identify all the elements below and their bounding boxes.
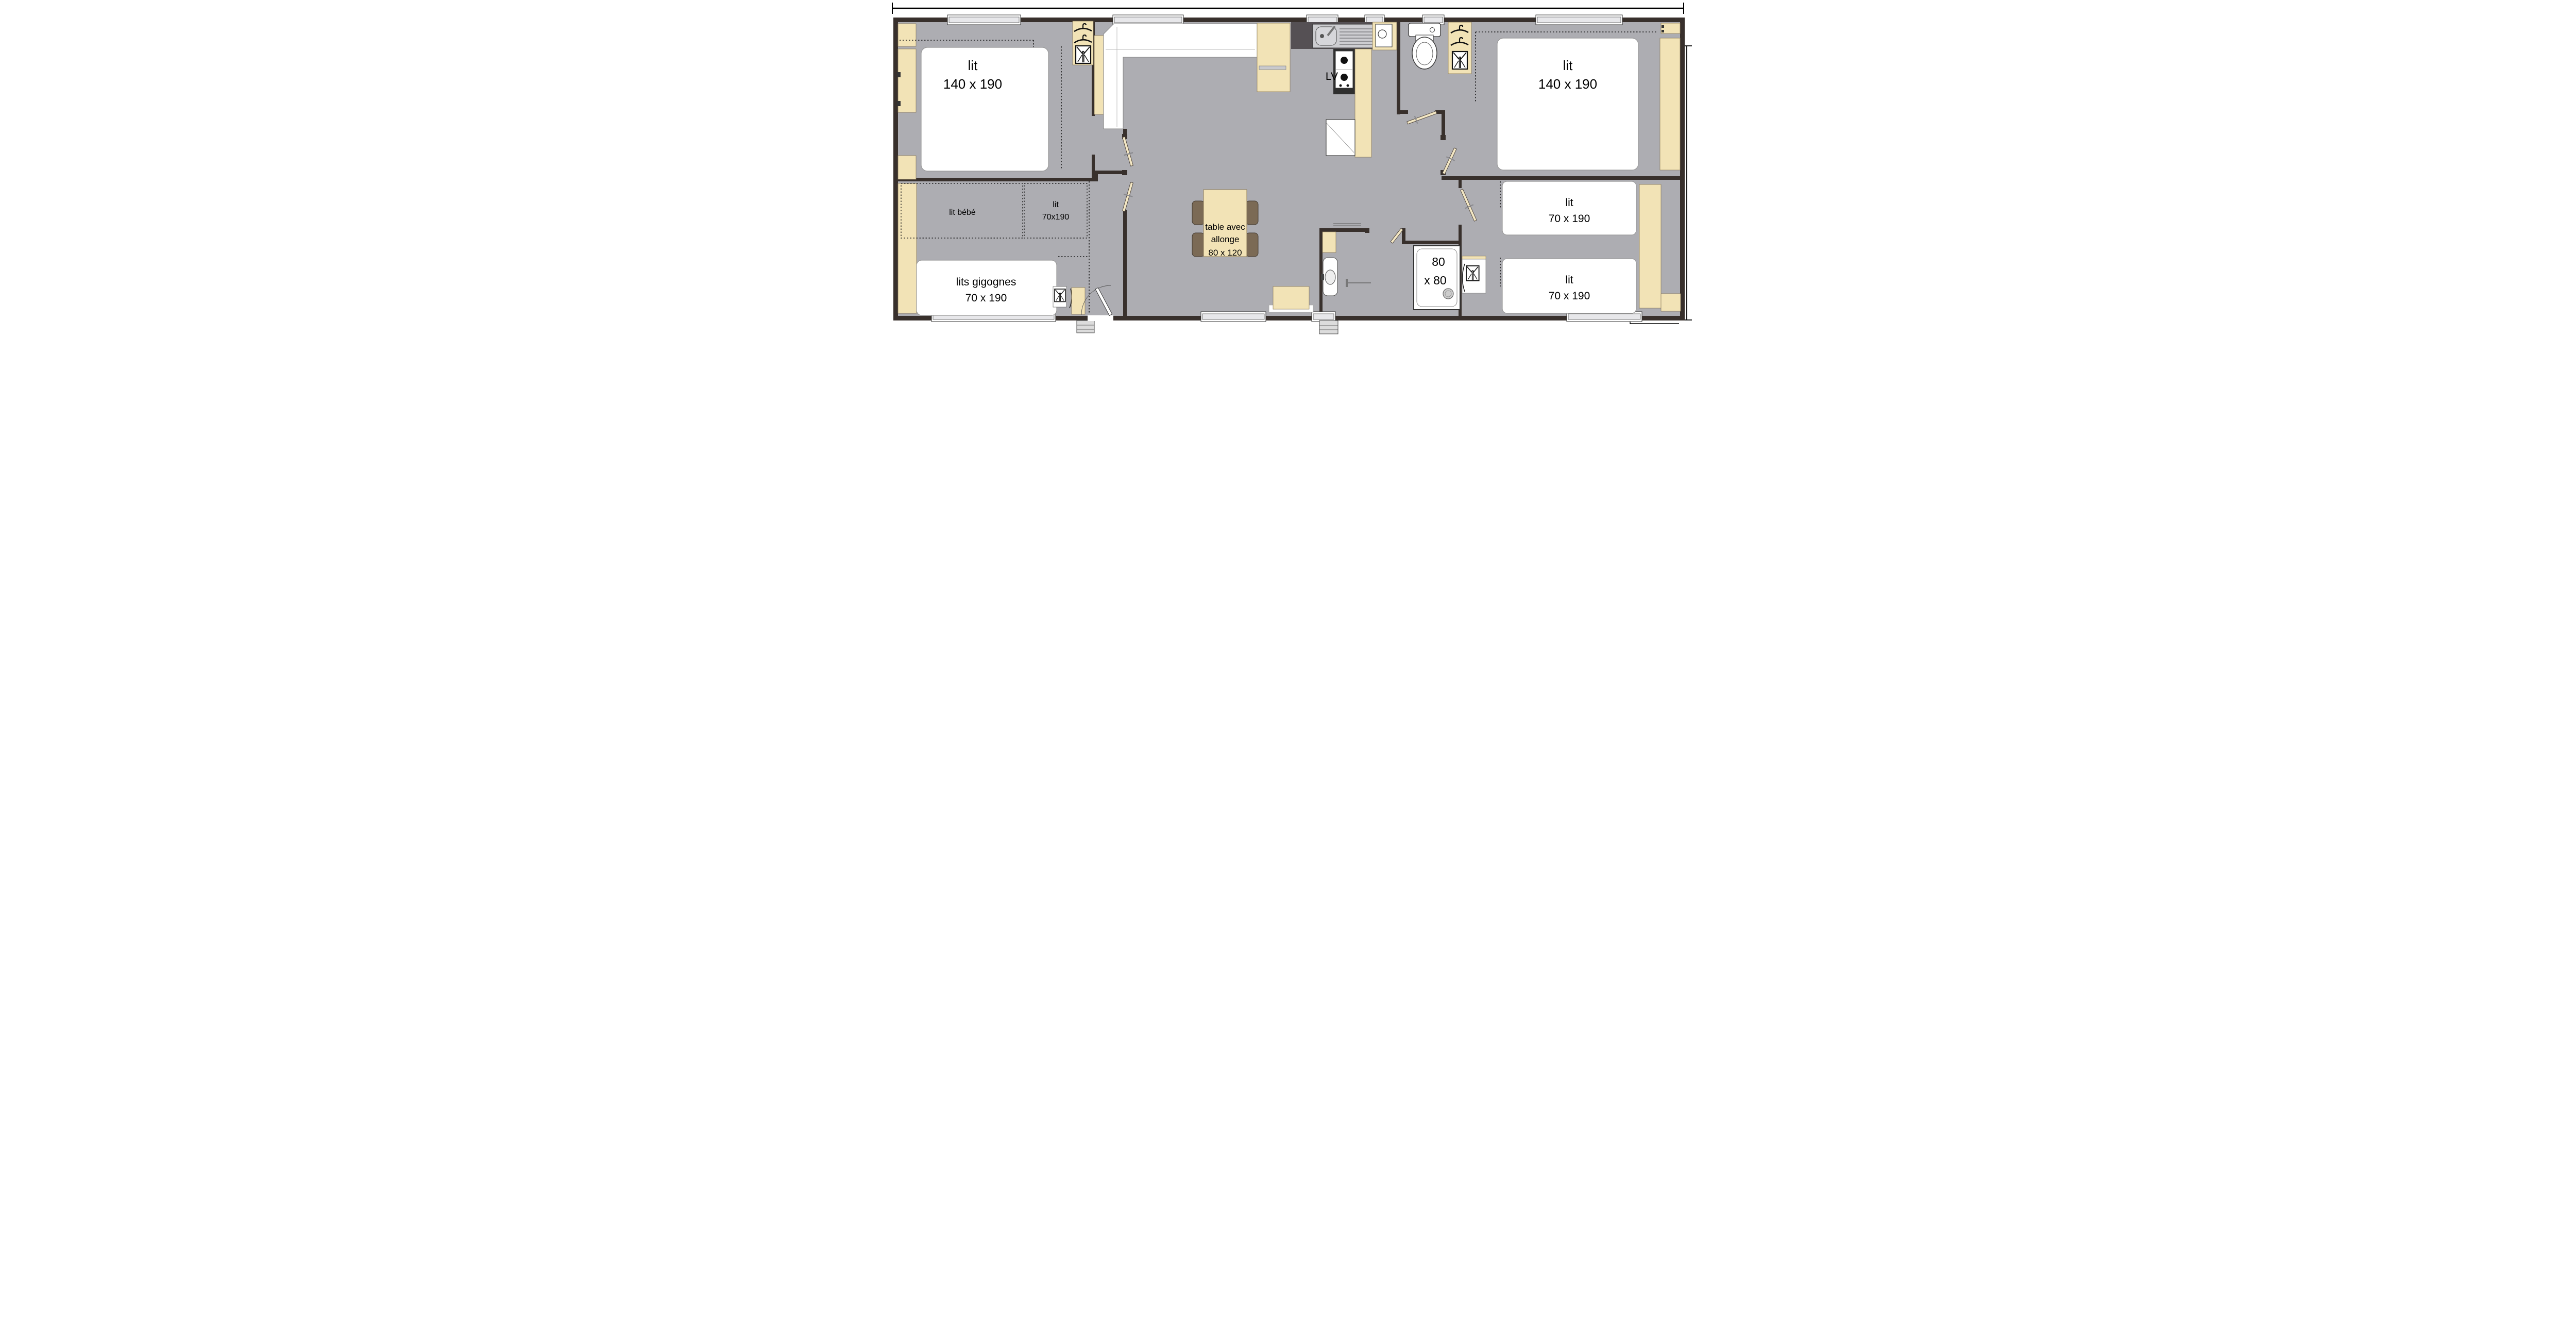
porthole-icon bbox=[1378, 30, 1386, 38]
side-cabinet bbox=[1660, 38, 1680, 170]
single-bed-label: lit bbox=[1053, 200, 1059, 209]
shirt-icon bbox=[1466, 266, 1479, 281]
tall-cabinet bbox=[1257, 23, 1290, 92]
bed-label: lit bbox=[1563, 58, 1573, 73]
table-label: table avec bbox=[1205, 222, 1245, 232]
closet-top bbox=[1462, 256, 1486, 259]
fridge bbox=[1326, 120, 1355, 156]
wall-wc-west bbox=[1397, 22, 1400, 114]
wall-bedrooms-divider bbox=[1442, 176, 1682, 180]
window bbox=[1201, 312, 1266, 322]
floor-plan-canvas: lit 140 x 190 lit bébé lit 70x190 lits g… bbox=[884, 0, 1692, 389]
toilet-icon bbox=[1412, 37, 1437, 69]
wall-hall-right-upper bbox=[1442, 110, 1445, 135]
window bbox=[947, 15, 1021, 25]
shirt-icon bbox=[1055, 289, 1065, 301]
side-cabinet bbox=[898, 183, 917, 313]
wardrobe-column bbox=[1639, 184, 1661, 308]
tv-cabinet bbox=[1273, 286, 1309, 309]
cabinet-knob bbox=[897, 72, 901, 77]
single-bed bbox=[1502, 259, 1636, 313]
bed-label: lit bbox=[1565, 197, 1573, 209]
hob-knob bbox=[1340, 85, 1342, 87]
window bbox=[1536, 15, 1622, 25]
bed-size-label: 70 x 190 bbox=[1549, 213, 1590, 225]
bed-label: lit bbox=[1565, 274, 1573, 286]
shirt-icon bbox=[1076, 46, 1091, 63]
floor-plan: lit 140 x 190 lit bébé lit 70x190 lits g… bbox=[884, 0, 1692, 389]
sink-drain bbox=[1320, 34, 1324, 38]
entry-door-opening bbox=[1088, 315, 1113, 321]
bathroom-cabinet bbox=[1323, 232, 1336, 252]
wall-hall-left-top bbox=[1123, 129, 1127, 134]
wall-bathroom-west bbox=[1319, 228, 1323, 316]
chair bbox=[1192, 201, 1205, 225]
table-label-2: allonge bbox=[1211, 234, 1240, 244]
wall-jog-top bbox=[1094, 171, 1125, 174]
entry-cabinet bbox=[1072, 288, 1085, 314]
wall-master-south bbox=[893, 178, 1098, 181]
wall-hall-left-bottom bbox=[1123, 210, 1127, 316]
burner-icon bbox=[1341, 74, 1348, 81]
bed-label: lit bbox=[968, 58, 978, 73]
shirt-icon bbox=[1452, 52, 1467, 69]
baby-bed-label: lit bébé bbox=[949, 208, 976, 217]
single-bed-size-label: 70x190 bbox=[1042, 213, 1070, 222]
entry-step bbox=[1077, 320, 1094, 333]
dishwasher-label: LV bbox=[1326, 71, 1338, 82]
headboard-cabinet bbox=[898, 24, 916, 46]
headboard-cabinet bbox=[898, 49, 916, 112]
chair bbox=[1246, 233, 1258, 257]
bed-size-label: 140 x 190 bbox=[1538, 76, 1597, 92]
hob-knob bbox=[1347, 85, 1349, 87]
burner-icon bbox=[1341, 57, 1348, 64]
table-size-label: 80 x 120 bbox=[1208, 248, 1242, 258]
shower-drain-icon bbox=[1443, 289, 1453, 299]
door-post bbox=[1440, 135, 1446, 140]
toilet-tank bbox=[1409, 23, 1440, 37]
nesting-beds-label: lits gigognes bbox=[956, 276, 1016, 288]
shower-size-label-2: x 80 bbox=[1424, 274, 1446, 287]
double-bed bbox=[921, 47, 1048, 171]
shower-size-label: 80 bbox=[1432, 255, 1445, 268]
washbasin-bowl bbox=[1325, 270, 1335, 284]
bed-size-label: 140 x 190 bbox=[943, 76, 1002, 92]
kitchen-column bbox=[1355, 49, 1371, 157]
chair bbox=[1192, 233, 1205, 257]
towel-bar-post bbox=[1346, 279, 1348, 287]
cabinet-knob bbox=[1662, 30, 1664, 32]
window bbox=[1312, 312, 1335, 322]
entry-steps bbox=[1077, 320, 1338, 334]
nesting-beds-size-label: 70 x 190 bbox=[965, 292, 1007, 304]
corner-cabinet bbox=[1661, 294, 1681, 311]
wall-shower-north bbox=[1402, 241, 1460, 244]
wall-bathroom-north bbox=[1319, 228, 1367, 232]
cabinet-knob bbox=[1662, 25, 1664, 28]
bed-size-label: 70 x 190 bbox=[1549, 290, 1590, 302]
window bbox=[1113, 15, 1183, 25]
wall-wc-south-left bbox=[1397, 110, 1408, 114]
entry-step bbox=[1319, 320, 1338, 334]
cabinet-knob bbox=[897, 101, 901, 106]
chair bbox=[1246, 201, 1258, 225]
headboard-cabinet bbox=[898, 156, 916, 179]
cabinet-handle bbox=[1259, 66, 1286, 70]
wall-bedroom4-west-top bbox=[1459, 180, 1462, 188]
door-post bbox=[1365, 228, 1369, 233]
washbasin-handle bbox=[1321, 274, 1324, 280]
